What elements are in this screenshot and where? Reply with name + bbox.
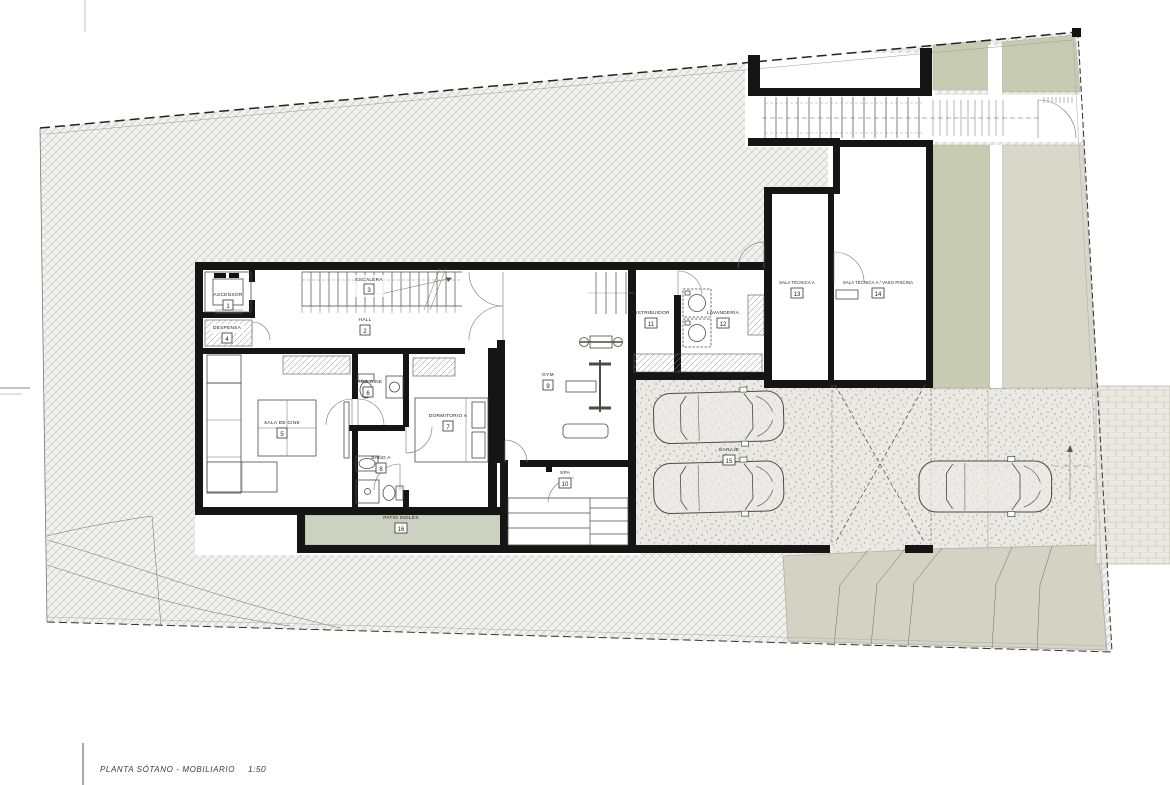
drawing-title: PLANTA SÓTANO - MOBILIARIO <box>100 765 235 774</box>
room-number: 13 <box>794 292 801 298</box>
room-name: BAÑO A <box>371 454 391 461</box>
room-label-hall: HALL 2 <box>359 317 372 335</box>
title-block: PLANTA SÓTANO - MOBILIARIO 1:50 <box>83 743 266 785</box>
room-label-escalera: ESCALERA 3 <box>354 275 384 297</box>
room-number: 10 <box>562 482 569 488</box>
driveway-ramp <box>783 545 1107 650</box>
car-icon <box>653 456 784 518</box>
room-label-gym: GYM 9 <box>542 372 554 390</box>
floor-plan-drawing: ASCENSOR 1 HALL 2 ESCALERA 3 DESPENSA 4 … <box>0 0 1170 785</box>
room-name: GARAJE <box>719 447 740 453</box>
room-name: ASCENSOR <box>214 292 243 298</box>
car-icon <box>653 386 784 448</box>
room-label-spa: SPA 10 <box>559 470 571 488</box>
room-name: SALA TÉCNICA A <box>779 280 815 285</box>
planting-strip <box>933 145 990 388</box>
boundary-corner-mark <box>1072 28 1081 37</box>
side-yard-band <box>1002 145 1097 388</box>
room-number: 14 <box>875 292 882 298</box>
room-number: 16 <box>398 527 405 533</box>
room-name: GYM <box>542 372 554 378</box>
room-name: BAÑO CINE <box>354 378 383 385</box>
drain-channel <box>990 145 1002 388</box>
brick-pavement <box>1096 386 1170 564</box>
room-name: DISTRIBUIDOR <box>632 310 670 316</box>
room-name: SALA DE CINE <box>264 420 300 426</box>
room-name: ESCALERA <box>355 277 383 283</box>
room-name: SALA TÉCNICA A / VASO PISCINA <box>843 280 913 285</box>
room-name: LAVANDERÍA <box>707 309 740 316</box>
room-name: SPA <box>560 470 571 476</box>
room-number: 12 <box>720 322 727 328</box>
landscape-zones <box>933 35 1097 388</box>
room-number: 11 <box>648 322 655 328</box>
planting-bed <box>1002 35 1080 92</box>
spa-column <box>546 466 552 472</box>
drain-channel <box>988 45 1002 95</box>
room-number: 15 <box>726 459 733 465</box>
room-name: DORMITORIO A <box>429 413 468 419</box>
room-name: HALL <box>359 317 372 323</box>
room-name: PATIO INGLÉS <box>383 514 419 521</box>
exterior-stair-landing <box>930 95 1082 142</box>
planting-bed <box>933 40 990 90</box>
car-icon <box>919 456 1052 516</box>
plan-sheet: ASCENSOR 1 HALL 2 ESCALERA 3 DESPENSA 4 … <box>0 0 1170 785</box>
tv-screen <box>344 402 349 458</box>
room-name: DESPENSA <box>213 325 242 331</box>
drawing-scale: 1:50 <box>248 764 266 774</box>
